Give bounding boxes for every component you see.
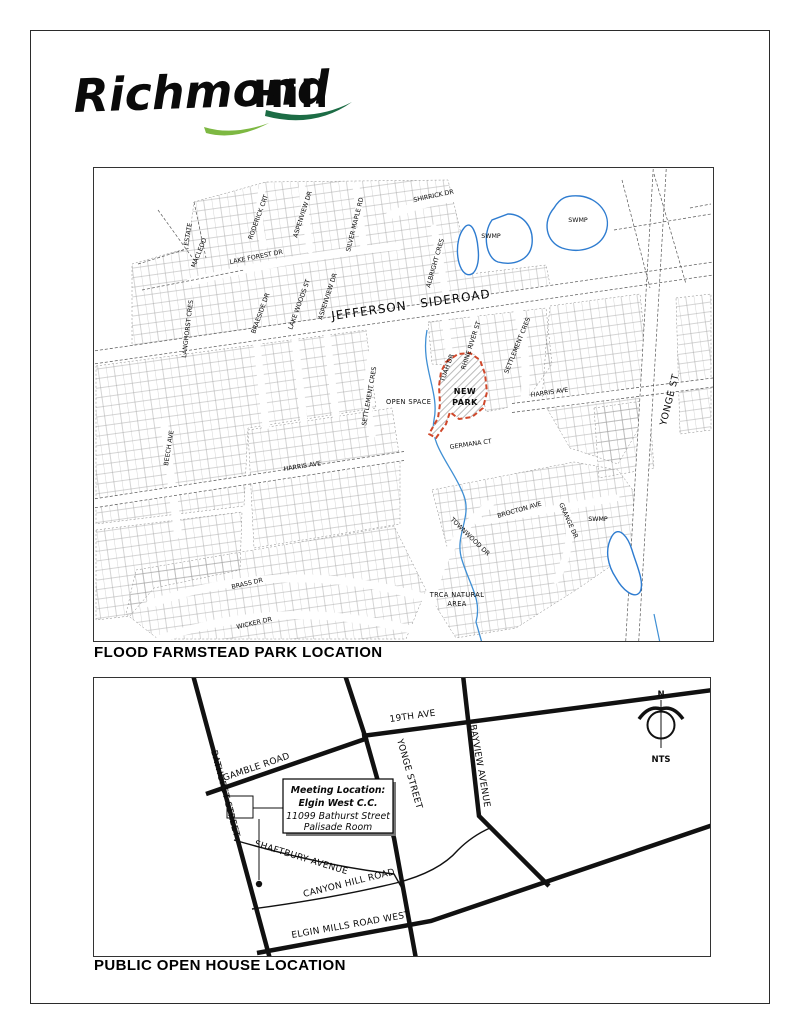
yonge-st-label: YONGE ST — [658, 373, 682, 428]
trca-label-line2: AREA — [447, 600, 466, 608]
compass-nts-label: NTS — [651, 755, 670, 765]
open-space-label: OPEN SPACE — [386, 398, 431, 406]
logo-svg: Richmond Hill — [72, 60, 362, 152]
swamp-label: SWMP — [481, 233, 501, 240]
compass-n-label: N — [657, 690, 664, 700]
minor-roads — [234, 828, 490, 909]
road-label: CANYON HILL ROAD — [302, 867, 396, 900]
callout-line1: Meeting Location: — [291, 785, 385, 796]
road-label: SHAFTBURY AVENUE — [253, 839, 349, 877]
road-label: BAYVIEW AVENUE — [467, 724, 491, 808]
swamp-label: SWMP — [568, 217, 588, 224]
callout-line4: Palisade Room — [304, 822, 372, 833]
map2-svg: Meeting Location: Elgin West C.C. 11099 … — [94, 678, 710, 956]
creek-branch — [654, 614, 660, 641]
map1-svg: JEFFERSON SIDEROAD YONGE ST OPEN SPACE N… — [94, 168, 713, 641]
flyer-page: Richmond Hill — [0, 0, 800, 1035]
meeting-location-dot — [256, 881, 262, 887]
trca-label-line1: TRCA NATURAL — [429, 591, 485, 599]
north-compass-icon: N NTS — [639, 690, 683, 765]
swamp-label: SWMP — [588, 516, 608, 523]
logo-word-hill: Hill — [253, 73, 330, 116]
map2-caption: PUBLIC OPEN HOUSE LOCATION — [94, 957, 346, 974]
new-park-label-line1: NEW — [454, 387, 476, 396]
road-label: 19TH AVE — [389, 709, 436, 725]
callout-line3: 11099 Bathurst Street — [286, 811, 390, 822]
public-open-house-map: Meeting Location: Elgin West C.C. 11099 … — [93, 677, 711, 957]
map1-caption: FLOOD FARMSTEAD PARK LOCATION — [94, 644, 383, 661]
road-label: YONGE STREET — [394, 737, 424, 810]
logo-swoosh-light-icon — [204, 123, 269, 135]
flood-farmstead-park-map: JEFFERSON SIDEROAD YONGE ST OPEN SPACE N… — [93, 167, 714, 642]
callout-line2: Elgin West C.C. — [298, 798, 377, 809]
new-park-label-line2: PARK — [452, 398, 478, 407]
richmond-hill-logo: Richmond Hill — [72, 60, 362, 152]
major-roads — [193, 678, 710, 956]
